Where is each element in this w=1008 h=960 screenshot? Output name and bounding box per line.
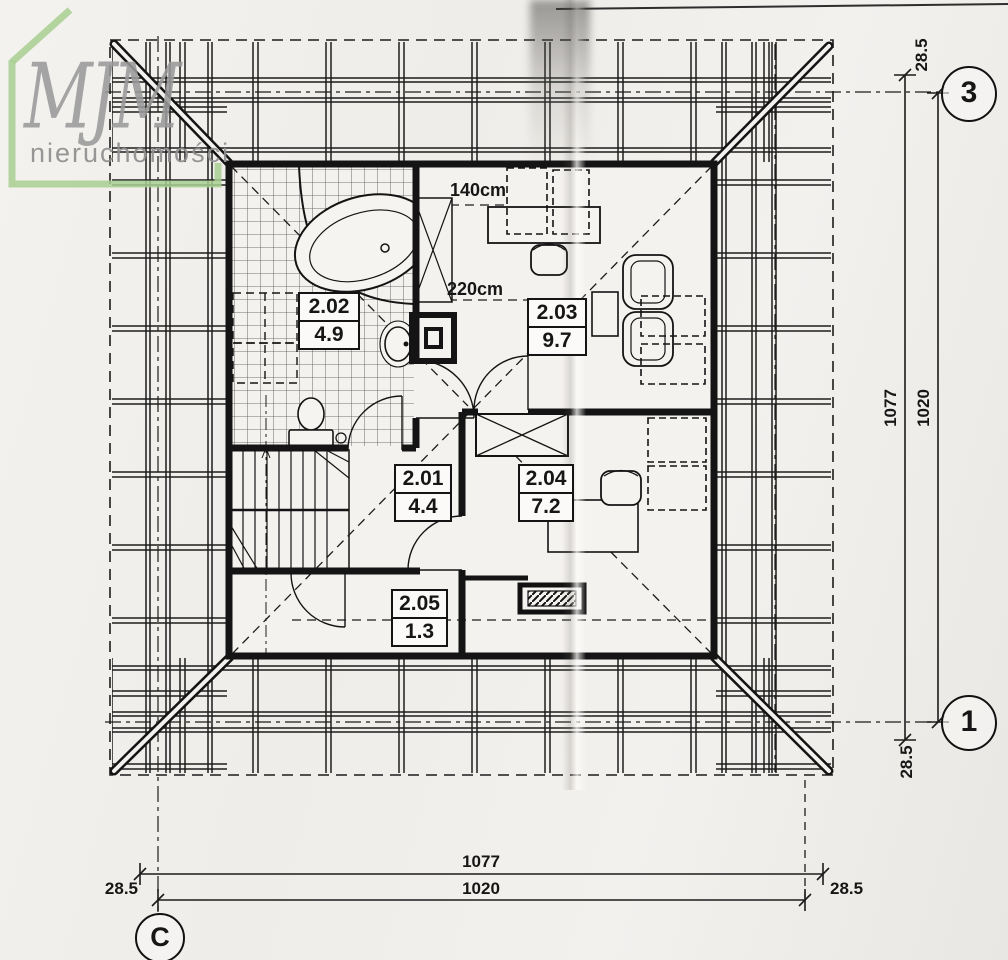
- room-number: 2.05: [393, 591, 446, 619]
- room-area: 1.3: [393, 619, 446, 645]
- dim-right-total: 1077: [881, 383, 901, 433]
- axis-marker-3: 3: [941, 66, 997, 122]
- dim-right-offset-top: 28.5: [912, 30, 932, 80]
- mjm-logo: MJM nieruchomości: [0, 0, 240, 205]
- axis-marker-1: 1: [941, 695, 997, 751]
- room-area: 7.2: [520, 494, 572, 520]
- dim-bottom-inner: 1020: [441, 879, 521, 899]
- skylight-width-note: 140cm: [450, 180, 506, 201]
- logo-brand-text: MJM: [24, 46, 178, 150]
- room-label-2-03: 2.03 9.7: [527, 298, 587, 356]
- dim-bottom-offset-right: 28.5: [830, 879, 870, 899]
- room-number: 2.01: [396, 466, 450, 494]
- room-area: 4.4: [396, 494, 450, 520]
- room-number: 2.04: [520, 466, 572, 494]
- room-label-2-01: 2.01 4.4: [394, 464, 452, 522]
- kneewall-height-note: 220cm: [447, 279, 503, 300]
- dim-bottom-offset-left: 28.5: [102, 879, 138, 899]
- side-table: [592, 292, 618, 336]
- paper-edge: [556, 4, 1008, 9]
- room-label-2-05: 2.05 1.3: [391, 589, 448, 647]
- room-area: 9.7: [529, 328, 585, 354]
- scanned-floor-plan-page: MJM nieruchomości 2.02 4.9 2.03 9.7 2.01…: [0, 0, 1008, 960]
- logo-subtitle-text: nieruchomości: [30, 138, 230, 169]
- room-area: 4.9: [300, 322, 358, 348]
- room-number: 2.02: [300, 294, 358, 322]
- dim-bottom-total: 1077: [441, 852, 521, 872]
- chair: [601, 471, 641, 505]
- room-label-2-02: 2.02 4.9: [298, 292, 360, 350]
- room-label-2-04: 2.04 7.2: [518, 464, 574, 522]
- room-number: 2.03: [529, 300, 585, 328]
- dim-right-inner: 1020: [914, 383, 934, 433]
- dim-right-offset-bottom: 28.5: [897, 737, 917, 787]
- axis-marker-c: C: [135, 913, 185, 960]
- scan-smudge: [530, 0, 590, 170]
